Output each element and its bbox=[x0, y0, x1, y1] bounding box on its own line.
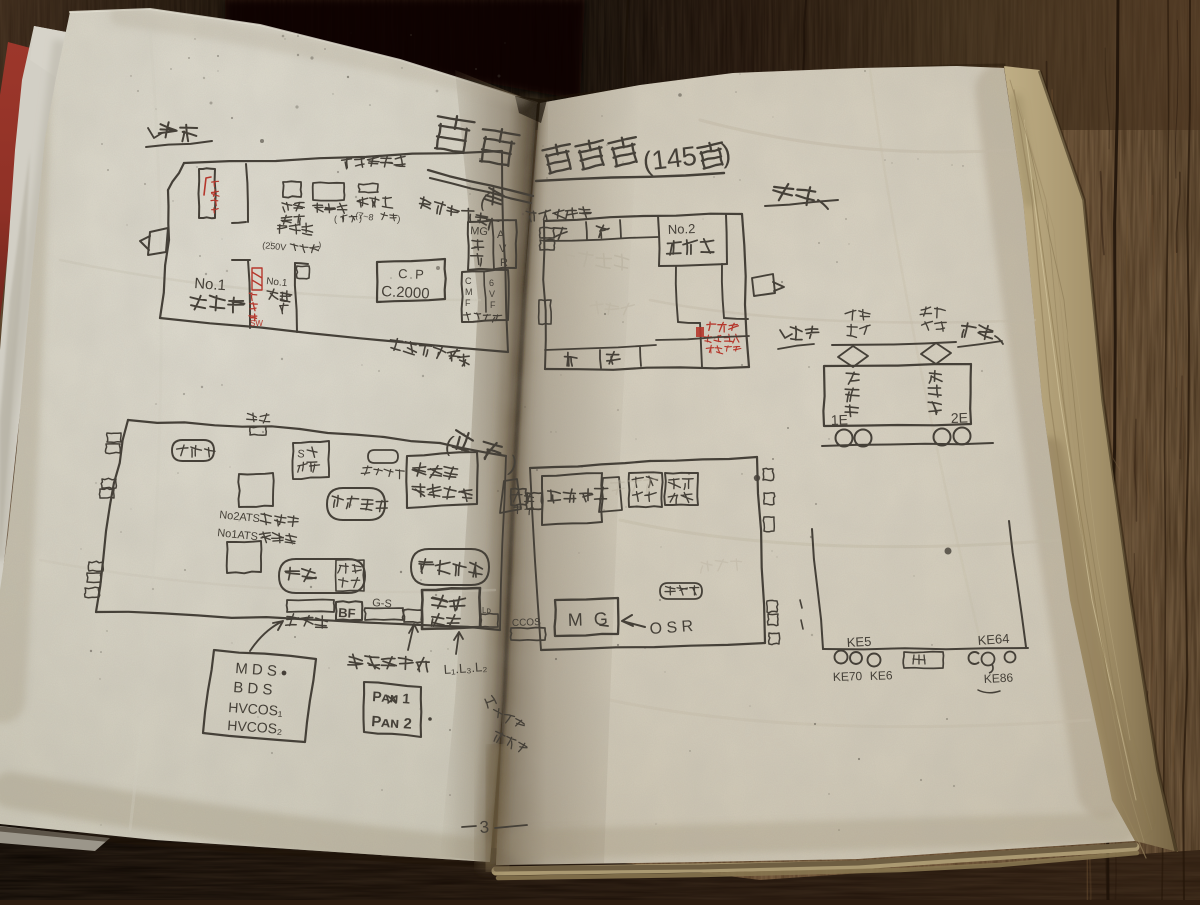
svg-text:F: F bbox=[465, 298, 471, 308]
svg-text:S: S bbox=[297, 448, 306, 461]
svg-text:Pᴀɴ 2: Pᴀɴ 2 bbox=[371, 713, 413, 733]
svg-text:KE86: KE86 bbox=[983, 670, 1013, 686]
svg-text:F: F bbox=[490, 300, 496, 310]
svg-text:M G: M G bbox=[567, 609, 611, 630]
svg-text:M: M bbox=[465, 287, 473, 297]
svg-text:3: 3 bbox=[479, 817, 490, 837]
svg-text:2E: 2E bbox=[951, 409, 969, 426]
svg-text:6: 6 bbox=[489, 278, 494, 288]
svg-text:B D S: B D S bbox=[233, 679, 273, 699]
svg-text:BF: BF bbox=[338, 605, 356, 621]
svg-text:R: R bbox=[500, 257, 508, 269]
svg-text:KE5: KE5 bbox=[846, 634, 871, 650]
svg-text:KE70: KE70 bbox=[833, 669, 863, 684]
svg-text:M D S: M D S bbox=[235, 660, 278, 680]
svg-text:A: A bbox=[497, 229, 505, 241]
svg-text:(: ( bbox=[334, 214, 337, 224]
svg-text:1E: 1E bbox=[831, 411, 849, 428]
svg-text:No.2: No.2 bbox=[668, 221, 696, 237]
svg-text:L₁.L₃.L₂: L₁.L₃.L₂ bbox=[443, 659, 488, 677]
svg-text:O S R: O S R bbox=[649, 618, 694, 638]
svg-text:C: C bbox=[465, 276, 472, 286]
svg-text:No.1: No.1 bbox=[266, 276, 289, 289]
svg-text:MG: MG bbox=[470, 225, 489, 238]
svg-text:Lᴅ: Lᴅ bbox=[482, 606, 491, 615]
svg-text:KE6: KE6 bbox=[870, 668, 893, 683]
svg-text:C P: C P bbox=[398, 266, 426, 282]
svg-text:V: V bbox=[499, 243, 507, 255]
svg-text:SW: SW bbox=[250, 319, 263, 328]
svg-text:C.2000: C.2000 bbox=[381, 283, 430, 303]
svg-text:V: V bbox=[489, 289, 495, 299]
svg-text:No.1: No.1 bbox=[194, 275, 227, 294]
svg-text:Pᴀɴ 1: Pᴀɴ 1 bbox=[372, 688, 411, 707]
svg-text:KE64: KE64 bbox=[977, 631, 1010, 648]
